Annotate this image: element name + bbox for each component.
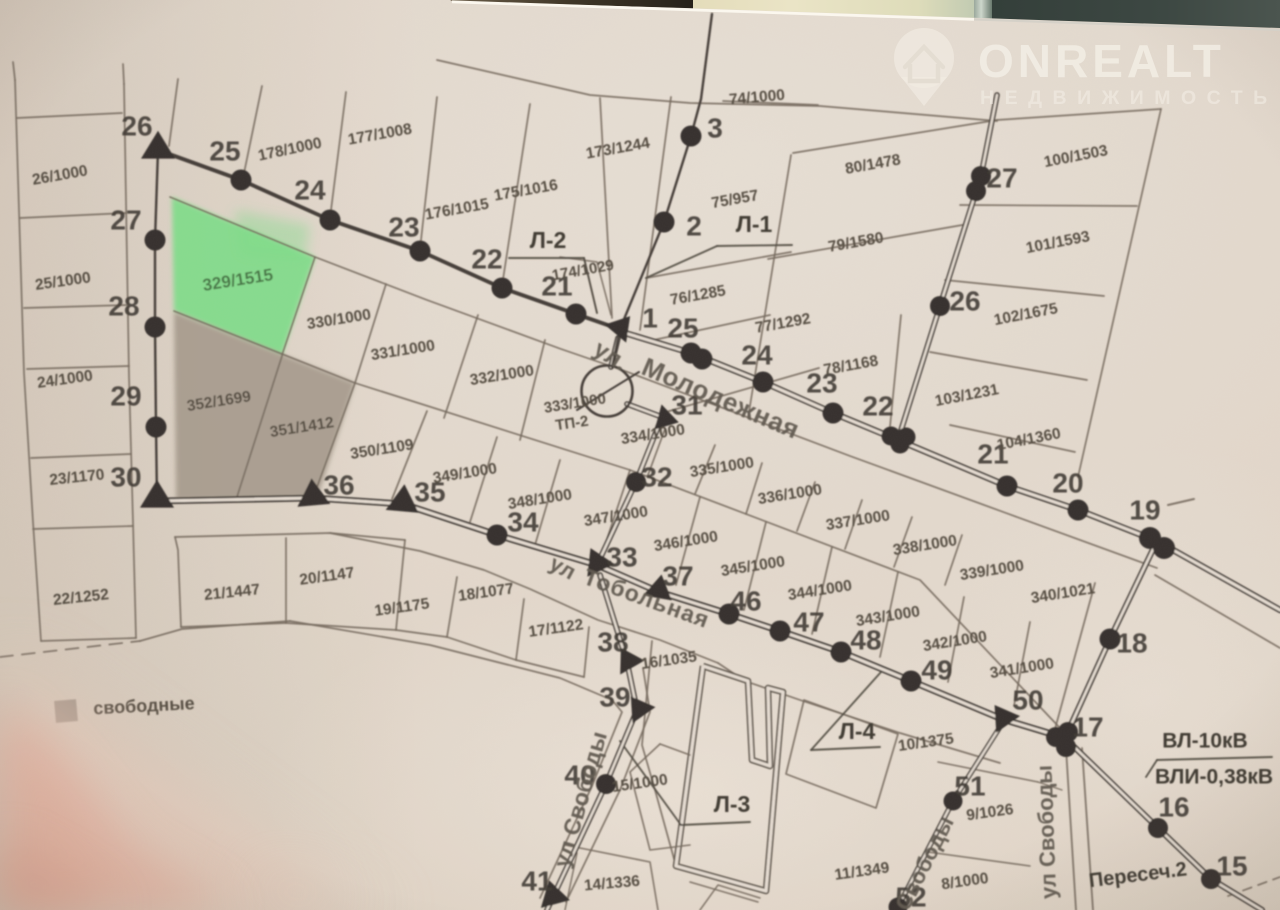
- svg-text:ONREALT: ONREALT: [978, 35, 1225, 87]
- svg-text:НЕДВИЖИМОСТЬ: НЕДВИЖИМОСТЬ: [980, 87, 1278, 109]
